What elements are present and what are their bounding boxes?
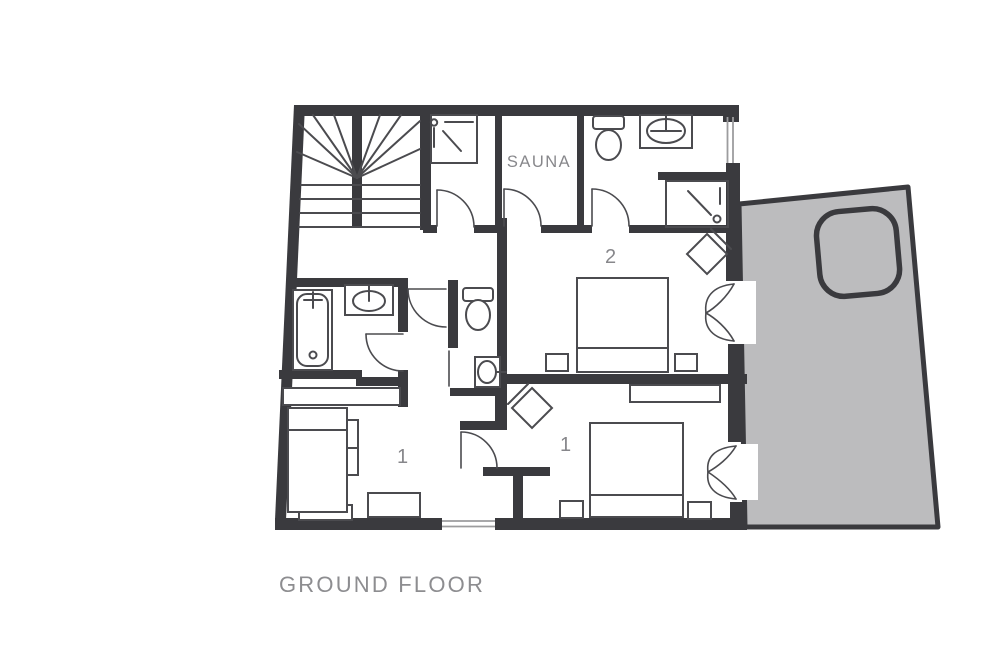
stove-icon — [508, 384, 552, 428]
wall-right-middle — [728, 343, 742, 442]
bathtub-icon — [293, 290, 332, 370]
bedroom2-label: 2 — [605, 246, 617, 268]
terrace — [739, 187, 938, 527]
bedroom1-label: 1 — [560, 434, 572, 456]
french-doors-bedroom2 — [706, 281, 756, 344]
bathroom-left — [293, 285, 393, 370]
bathroom-top — [593, 115, 728, 227]
stove-icon — [687, 229, 731, 274]
side-table — [368, 493, 420, 517]
sink-icon — [345, 285, 393, 315]
window-bottom — [442, 521, 495, 527]
bedroom1 — [508, 384, 720, 519]
page-title: GROUND FLOOR — [279, 572, 485, 597]
wall-right-lower — [730, 502, 746, 522]
sink-icon — [640, 115, 692, 148]
double-bed — [577, 278, 668, 372]
nightstand — [688, 502, 711, 519]
nightstand — [675, 354, 697, 371]
door-swing-bedroom1 — [461, 432, 497, 468]
door-swing-bathroom — [366, 334, 403, 371]
french-doors-bedroom1 — [708, 444, 758, 500]
dresser — [283, 388, 400, 405]
window-right — [728, 117, 734, 163]
door-swing-sauna — [504, 189, 541, 226]
nightstand — [560, 501, 583, 518]
wall-right-corner — [723, 105, 739, 122]
toilet-icon — [463, 288, 493, 330]
toilet-icon — [593, 116, 624, 160]
shower-room-top — [431, 115, 477, 163]
sofa-bed — [288, 408, 358, 520]
dresser — [630, 385, 720, 402]
sauna-label: SAUNA — [507, 153, 571, 171]
door-swing-hall — [408, 289, 446, 327]
floor-plan: SAUNA 2 1 1 GROUND FLOOR — [0, 0, 1000, 667]
door-swing-bedroom2 — [592, 189, 629, 226]
shower-head-icon — [431, 119, 473, 151]
hot-tub — [814, 207, 901, 299]
nightstand — [546, 354, 568, 371]
bedroom1-lounge-label: 1 — [397, 446, 409, 468]
shower-icon — [666, 181, 728, 227]
bedroom2 — [546, 229, 731, 372]
floor-plan-page: SAUNA 2 1 1 GROUND FLOOR — [0, 0, 1000, 667]
staircase — [297, 115, 420, 228]
door-swing — [437, 190, 474, 227]
double-bed — [590, 423, 683, 517]
